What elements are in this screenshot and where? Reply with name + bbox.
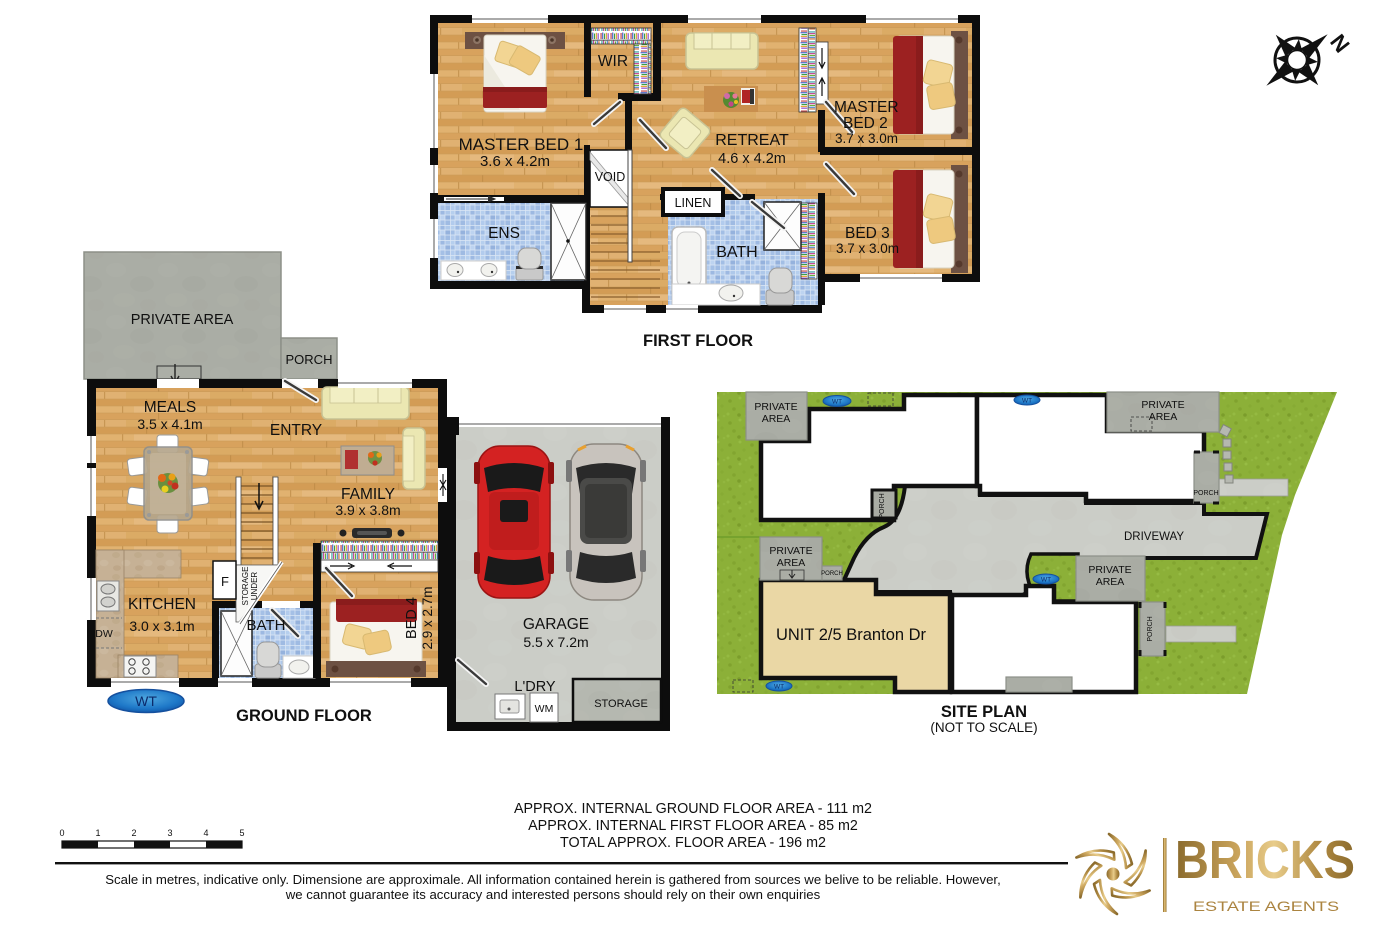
svg-text:BATH: BATH [247, 617, 286, 634]
svg-text:0: 0 [59, 828, 64, 838]
svg-text:3: 3 [167, 828, 172, 838]
svg-text:GARAGE: GARAGE [523, 616, 589, 633]
svg-text:WM: WM [535, 703, 554, 715]
svg-text:2: 2 [131, 828, 136, 838]
svg-text:DW: DW [95, 628, 113, 640]
svg-text:KITCHEN: KITCHEN [128, 596, 196, 613]
svg-text:PORCH: PORCH [286, 352, 333, 367]
svg-text:we cannot guarantee its accura: we cannot guarantee its accuracy and int… [285, 887, 821, 902]
svg-text:AREA: AREA [762, 413, 791, 425]
svg-text:UNIT 2/5 Branton Dr: UNIT 2/5 Branton Dr [776, 626, 927, 644]
svg-text:APPROX. INTERNAL GROUND FLOOR: APPROX. INTERNAL GROUND FLOOR AREA - 111… [514, 801, 872, 817]
svg-text:WT: WT [774, 684, 784, 691]
svg-text:F: F [221, 574, 229, 589]
svg-text:PORCH: PORCH [821, 571, 843, 577]
svg-text:TOTAL APPROX. FLOOR AREA - 19: TOTAL APPROX. FLOOR AREA - 196 m2 [560, 835, 826, 851]
svg-text:BED 2: BED 2 [843, 115, 888, 132]
svg-text:5: 5 [239, 828, 244, 838]
svg-text:Scale in metres, indicative on: Scale in metres, indicative only. Dimens… [105, 872, 1001, 887]
svg-text:L'DRY: L'DRY [514, 679, 556, 695]
svg-text:RETREAT: RETREAT [715, 132, 789, 149]
svg-text:BATH: BATH [716, 244, 757, 261]
svg-text:PRIVATE AREA: PRIVATE AREA [131, 312, 234, 328]
svg-text:VOID: VOID [595, 170, 626, 184]
svg-text:ESTATE AGENTS: ESTATE AGENTS [1193, 898, 1339, 914]
svg-text:WT: WT [832, 399, 842, 406]
svg-text:APPROX. INTERNAL FIRST FLOOR A: APPROX. INTERNAL FIRST FLOOR AREA - 85 m… [528, 818, 858, 834]
svg-text:PORCH: PORCH [879, 493, 886, 518]
svg-text:ENTRY: ENTRY [270, 422, 322, 439]
svg-text:(NOT TO SCALE): (NOT TO SCALE) [930, 720, 1037, 735]
svg-text:STORAGE: STORAGE [594, 698, 648, 710]
svg-text:PORCH: PORCH [1193, 490, 1218, 497]
svg-text:FIRST FLOOR: FIRST FLOOR [643, 332, 753, 350]
svg-text:MASTER BED 1: MASTER BED 1 [459, 135, 584, 154]
svg-text:1: 1 [95, 828, 100, 838]
svg-text:GROUND FLOOR: GROUND FLOOR [236, 707, 372, 725]
svg-text:BED 4: BED 4 [404, 597, 420, 639]
svg-text:2.9 x 2.7m: 2.9 x 2.7m [420, 586, 435, 649]
svg-text:SITE PLAN: SITE PLAN [941, 703, 1027, 721]
svg-text:4: 4 [203, 828, 208, 838]
svg-text:PRIVATE: PRIVATE [1141, 399, 1184, 411]
svg-text:4.6 x 4.2m: 4.6 x 4.2m [718, 151, 786, 167]
svg-text:3.7 x 3.0m: 3.7 x 3.0m [836, 241, 899, 256]
svg-text:3.0 x 3.1m: 3.0 x 3.1m [129, 618, 194, 634]
svg-text:MASTER: MASTER [834, 99, 899, 116]
svg-text:FAMILY: FAMILY [341, 486, 395, 503]
svg-text:3.9 x 3.8m: 3.9 x 3.8m [335, 502, 400, 518]
svg-text:DRIVEWAY: DRIVEWAY [1124, 531, 1184, 543]
svg-text:3.6 x 4.2m: 3.6 x 4.2m [480, 153, 550, 170]
svg-text:5.5 x 7.2m: 5.5 x 7.2m [523, 634, 588, 650]
svg-text:PRIVATE: PRIVATE [1088, 564, 1131, 576]
svg-text:AREA: AREA [777, 557, 806, 569]
svg-text:PRIVATE: PRIVATE [754, 401, 797, 413]
svg-text:PORCH: PORCH [1147, 616, 1154, 641]
svg-text:MEALS: MEALS [144, 399, 197, 416]
svg-text:STORAGEUNDER: STORAGEUNDER [241, 567, 259, 606]
svg-text:ENS: ENS [488, 225, 520, 242]
svg-text:AREA: AREA [1149, 411, 1178, 423]
svg-text:3.5 x 4.1m: 3.5 x 4.1m [137, 416, 202, 432]
svg-text:LINEN: LINEN [675, 196, 712, 210]
svg-text:WT: WT [135, 693, 157, 709]
svg-text:PRIVATE: PRIVATE [769, 545, 812, 557]
svg-text:WT: WT [1041, 577, 1051, 584]
svg-text:BED 3: BED 3 [845, 225, 890, 242]
svg-text:BRICKS: BRICKS [1175, 830, 1355, 890]
svg-text:AREA: AREA [1096, 576, 1125, 588]
svg-text:WT: WT [1022, 398, 1032, 405]
svg-text:3.7 x 3.0m: 3.7 x 3.0m [835, 131, 898, 146]
svg-text:WIR: WIR [598, 53, 628, 70]
